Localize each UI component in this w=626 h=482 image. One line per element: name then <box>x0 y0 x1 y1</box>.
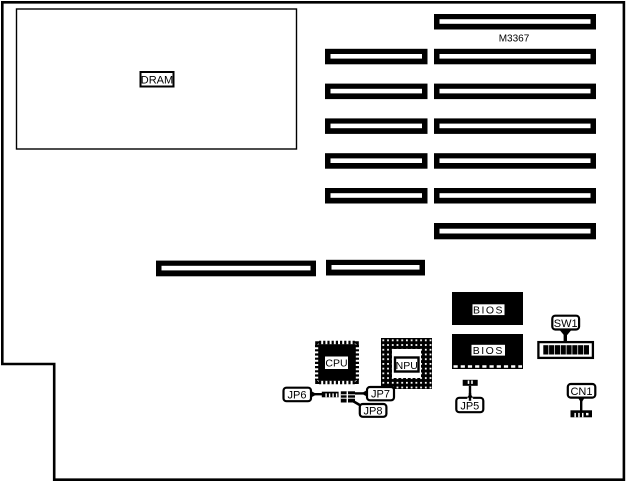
svg-text:BIOS: BIOS <box>473 345 504 357</box>
svg-text:JP8: JP8 <box>364 405 383 417</box>
svg-text:CPU: CPU <box>325 358 347 370</box>
svg-text:BIOS: BIOS <box>473 304 504 316</box>
svg-text:JP7: JP7 <box>371 389 390 401</box>
svg-text:CN1: CN1 <box>570 386 592 398</box>
svg-text:SW1: SW1 <box>554 318 578 330</box>
svg-text:DRAM: DRAM <box>141 75 173 87</box>
svg-text:JP5: JP5 <box>460 400 479 412</box>
svg-text:M3367: M3367 <box>499 33 530 44</box>
svg-text:JP6: JP6 <box>288 389 307 401</box>
svg-text:NPU: NPU <box>396 360 418 372</box>
